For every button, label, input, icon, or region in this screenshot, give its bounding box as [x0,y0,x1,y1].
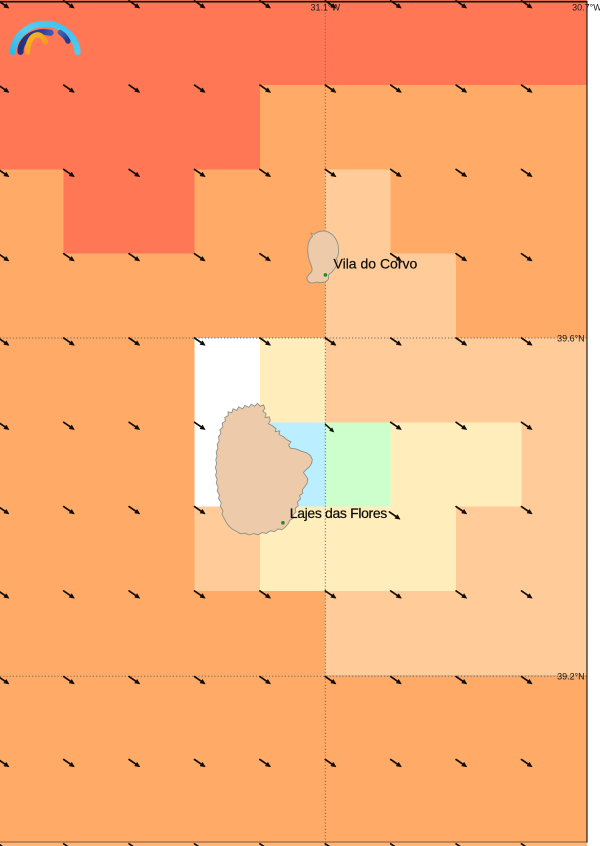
svg-text:Lajes das Flores: Lajes das Flores [290,505,387,521]
svg-text:39.6°N: 39.6°N [557,333,585,343]
svg-text:Vila do Corvo: Vila do Corvo [334,255,418,271]
svg-text:31.1°W: 31.1°W [310,2,340,12]
svg-text:39.2°N: 39.2°N [557,671,585,681]
svg-text:30.7°W: 30.7°W [572,2,600,12]
